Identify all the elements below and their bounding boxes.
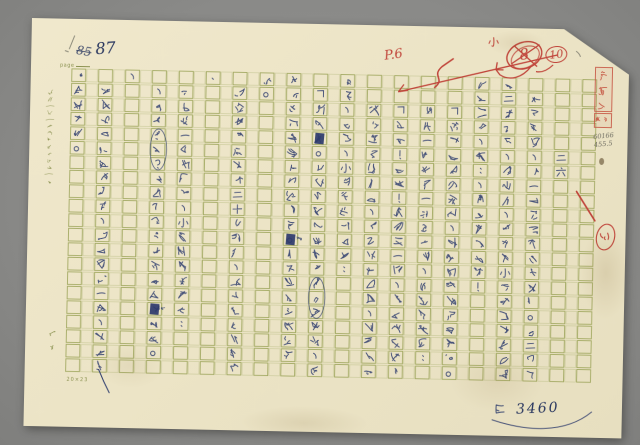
chapter-edit-marks	[575, 191, 618, 251]
grid-spec-label: 20×23	[66, 377, 88, 383]
crossed-out-page-number: 85	[75, 43, 92, 59]
insertion-line	[399, 52, 558, 95]
pencil-catalog-number: 60166455.5	[593, 131, 615, 149]
sub-stamp	[594, 113, 612, 128]
flourish-line	[536, 65, 553, 73]
page-printed-label: page	[60, 63, 75, 69]
page-number: 87	[95, 38, 117, 58]
scanned-manuscript-page: page 85 87 P.6 8 10 60166455.5 3460 20×2…	[0, 0, 640, 445]
ink-flourish	[98, 369, 109, 392]
manuscript-paper: page 85 87 P.6 8 10 60166455.5 3460 20×2…	[23, 18, 629, 438]
paper-shadow-wrap: page 85 87 P.6 8 10 60166455.5 3460 20×2…	[23, 18, 629, 438]
name-stamp	[594, 67, 613, 112]
pencil-marks	[65, 36, 612, 63]
red-edit-marks	[23, 18, 629, 438]
red-page-ref: P.6	[383, 46, 403, 63]
word-count-note: 3460	[516, 400, 560, 418]
